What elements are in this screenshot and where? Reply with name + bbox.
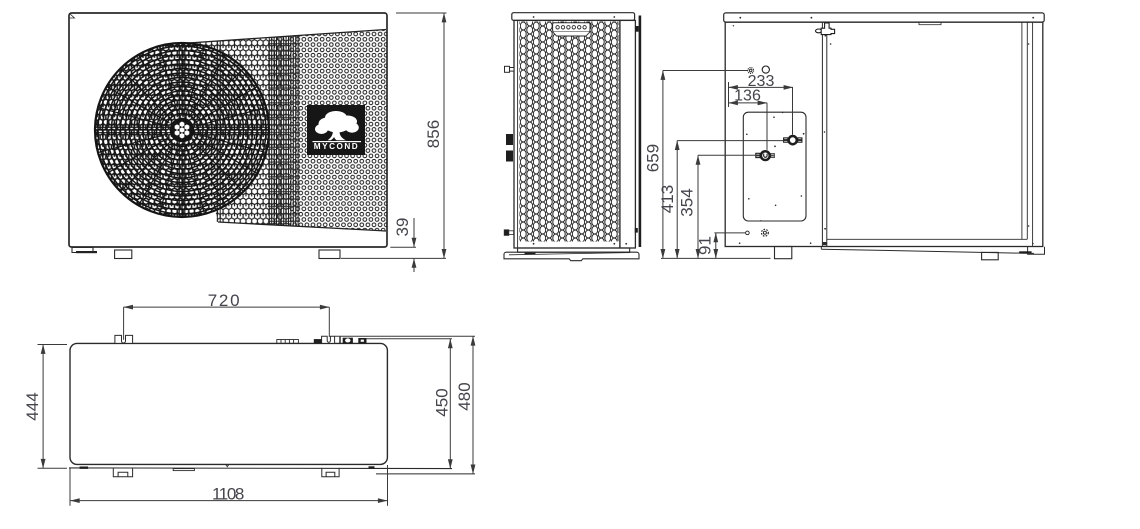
svg-text:720: 720 bbox=[208, 291, 241, 310]
svg-text:450: 450 bbox=[432, 388, 451, 416]
svg-text:1108: 1108 bbox=[212, 485, 244, 504]
svg-text:480: 480 bbox=[455, 382, 474, 410]
svg-text:91: 91 bbox=[696, 236, 715, 255]
svg-text:856: 856 bbox=[424, 120, 443, 148]
svg-text:444: 444 bbox=[23, 392, 42, 420]
svg-text:413: 413 bbox=[658, 185, 677, 213]
svg-text:39: 39 bbox=[393, 218, 412, 237]
svg-text:659: 659 bbox=[643, 144, 662, 172]
svg-text:354: 354 bbox=[677, 188, 696, 216]
svg-text:MYCOND: MYCOND bbox=[314, 142, 359, 151]
svg-text:136: 136 bbox=[734, 88, 761, 105]
